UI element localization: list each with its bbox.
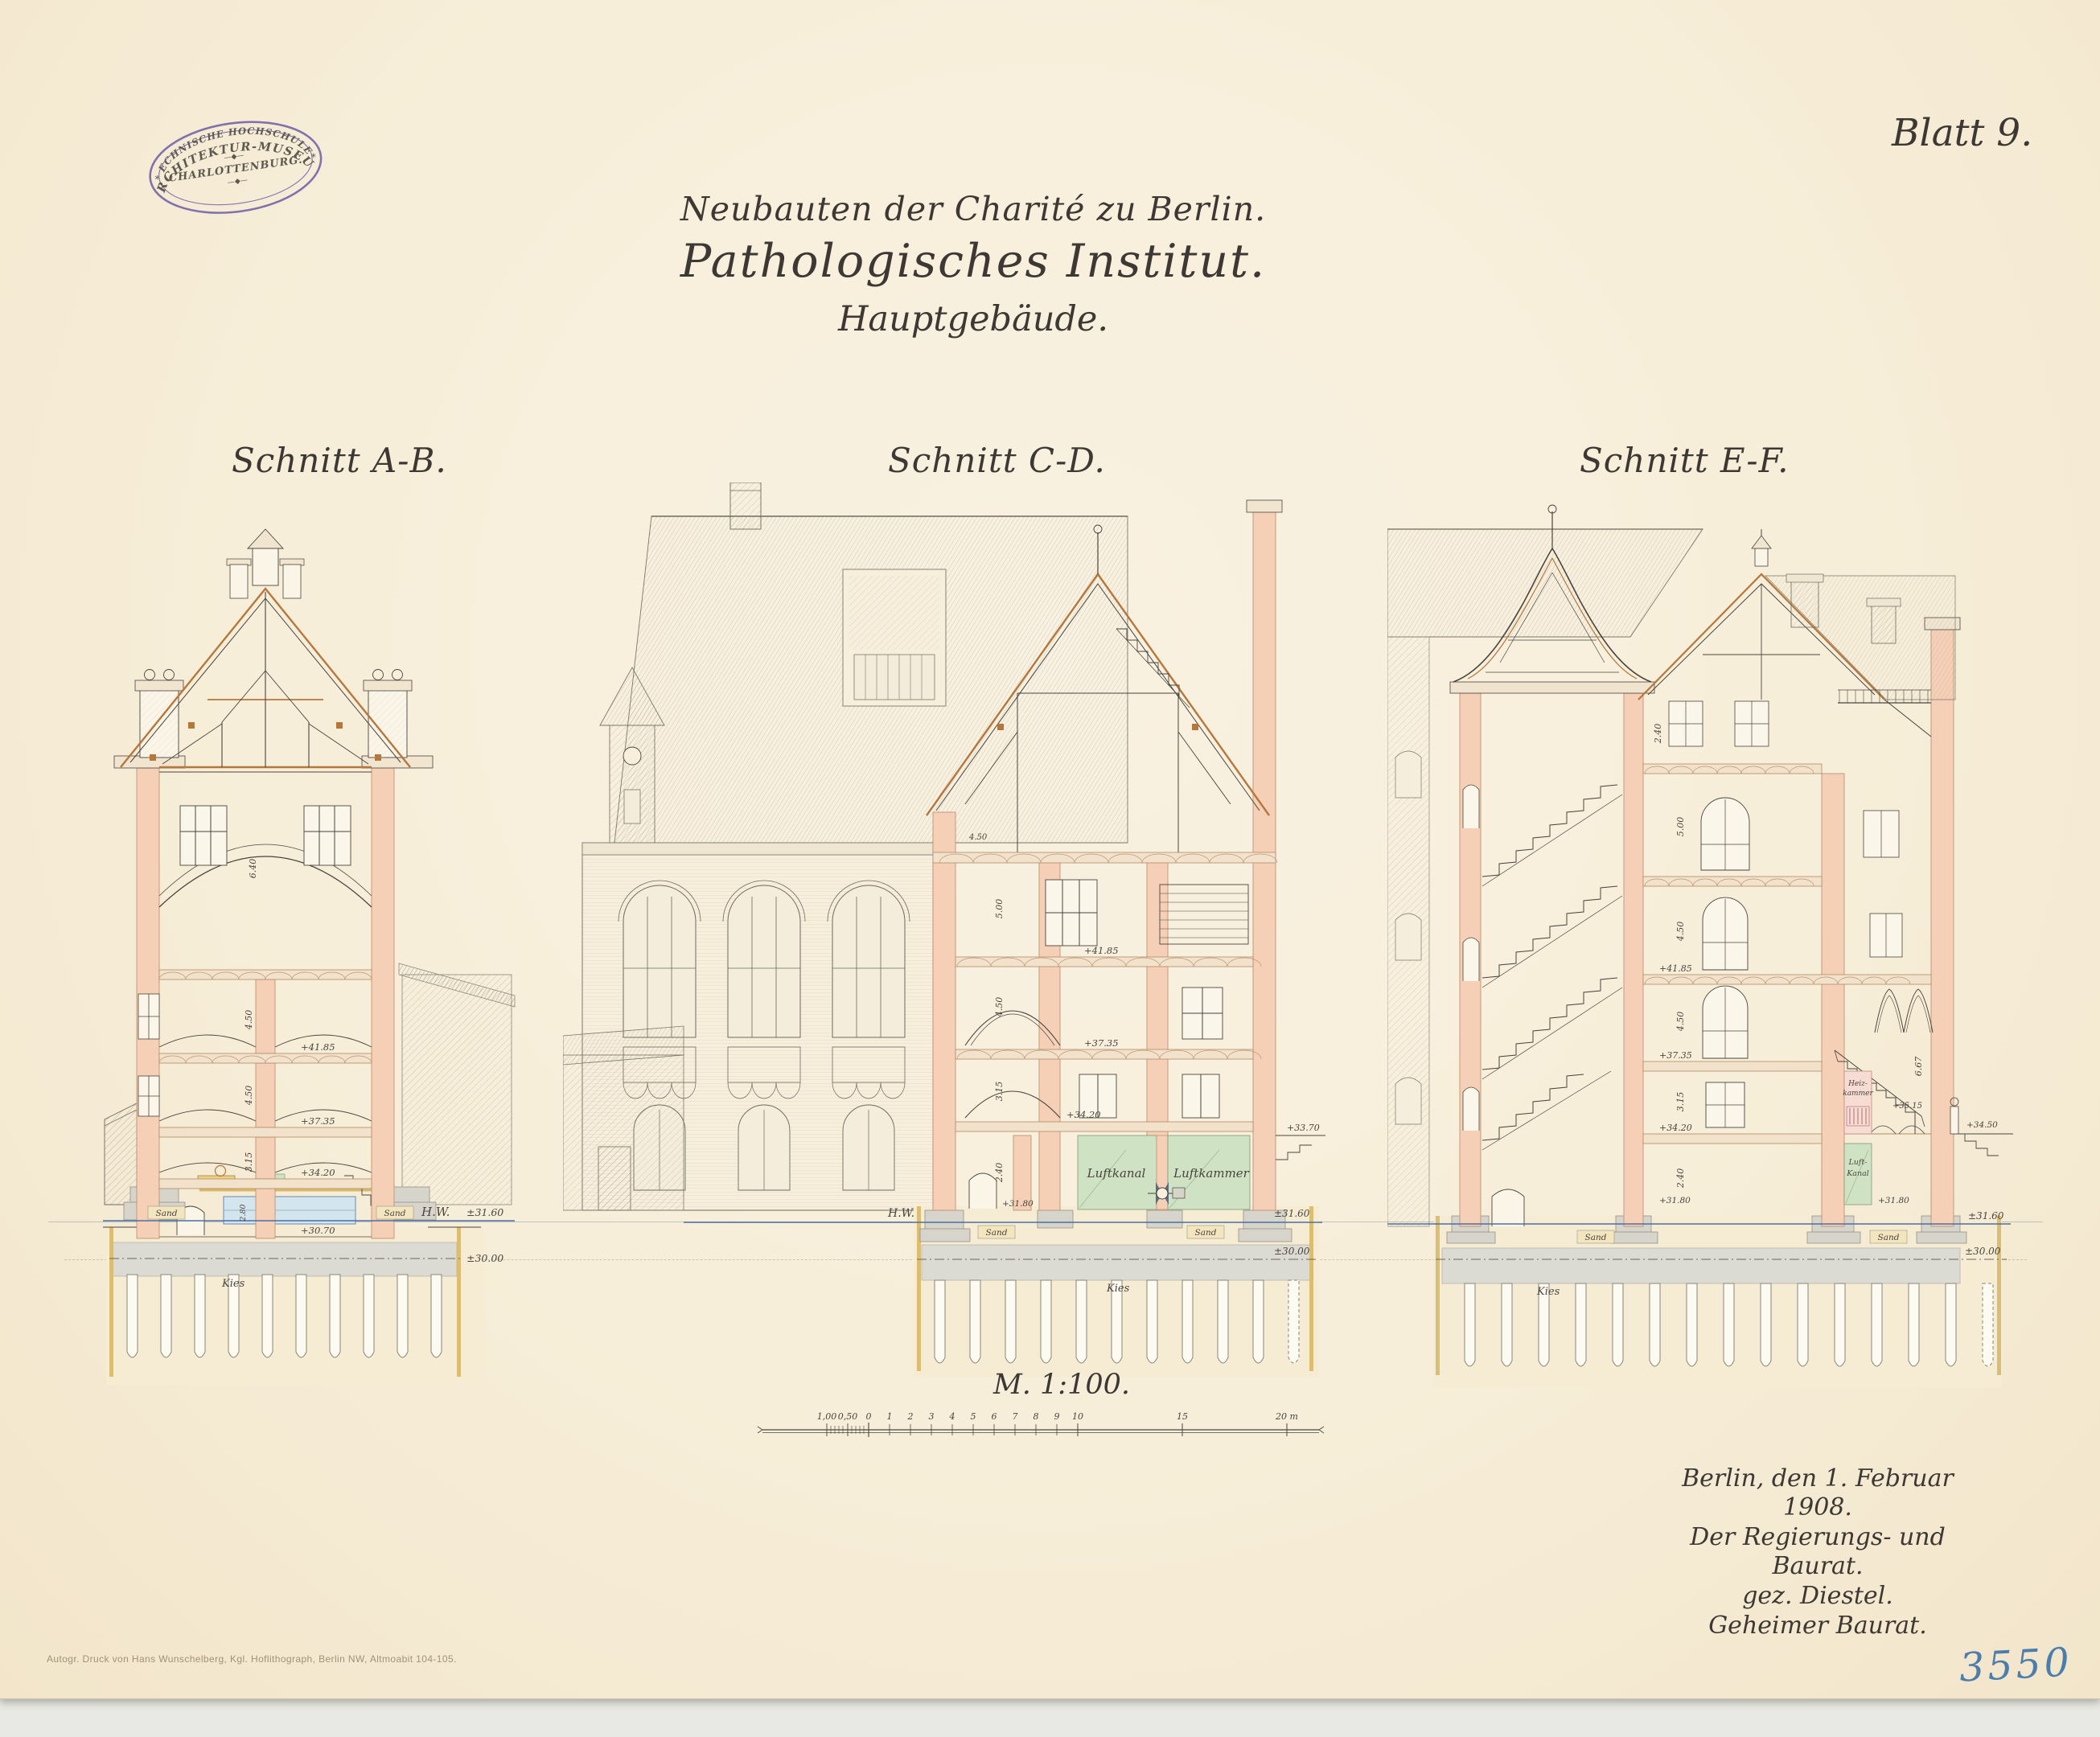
ef-level-4185: +41.85 (1659, 963, 1692, 974)
scale-tick: 1,00 (817, 1411, 837, 1422)
signature-place-date: Berlin, den 1. Februar 1908. (1665, 1464, 1971, 1522)
cd-dim-attic: 4.50 (968, 833, 988, 842)
scale-tick: 15 (1177, 1411, 1188, 1422)
ef-dim-4: 3.15 (1675, 1092, 1686, 1112)
ab-level-3420: +34.20 (301, 1167, 335, 1178)
stamp-star-right: * (310, 151, 317, 163)
cd-level-3735: +37.35 (1084, 1037, 1119, 1049)
cd-level-3420: +34.20 (1066, 1109, 1101, 1120)
cd-level-3370: +33.70 (1287, 1123, 1320, 1133)
ef-heiz-label-2: kammer (1843, 1090, 1873, 1098)
ab-hall (159, 806, 372, 907)
cd-level-4185: +41.85 (1084, 945, 1119, 956)
stamp-ornament-bottom: —◆— (227, 176, 248, 187)
cd-kies-label: Kies (1106, 1283, 1130, 1295)
section-cd-drawing: Luftkanal Luftkammer Sand Sand Kies (563, 482, 1327, 1399)
ef-level-3180-right: +31.80 (1878, 1196, 1909, 1205)
ef-sand-left-label: Sand (1585, 1233, 1607, 1242)
title-line-3: Hauptgebäude. (668, 299, 1279, 339)
ef-dim-2: 4.50 (1675, 922, 1686, 942)
scale-tick: 10 (1072, 1411, 1083, 1422)
ef-dim-3: 4.50 (1675, 1012, 1686, 1033)
scale-tick: 1 (887, 1411, 893, 1422)
scale-tick: 5 (971, 1411, 976, 1422)
ab-ground (103, 1227, 484, 1385)
ab-dim-4: 3.15 (244, 1152, 254, 1172)
inventory-number: 3550 (1958, 1639, 2073, 1690)
signature-name: gez. Diestel. (1665, 1582, 1971, 1611)
cd-dim-4: 2.40 (994, 1163, 1005, 1184)
ef-luft-label-2: Kanal (1846, 1169, 1869, 1178)
cd-sand-right-label: Sand (1195, 1228, 1217, 1238)
ab-level-4185: +41.85 (301, 1041, 335, 1053)
scale-tick: 6 (992, 1411, 997, 1422)
printer-imprint: Autogr. Druck von Hans Wunschelberg, Kgl… (47, 1653, 457, 1665)
scale-tick: 0 (866, 1411, 872, 1422)
ab-level-3070: +30.70 (301, 1225, 335, 1236)
page-title: Pathologisches Institut. (668, 235, 1279, 288)
cd-basement-air-rooms: Luftkanal Luftkammer (1078, 1135, 1250, 1209)
ef-dim-hall: 6.67 (1913, 1057, 1924, 1077)
ab-hw-label: H.W. (421, 1205, 450, 1219)
scale-bar: 1,00 0,50 0 1 2 3 4 5 6 7 8 9 10 15 20 m (756, 1409, 1327, 1444)
ab-flywheel (216, 1166, 226, 1176)
ab-level-3735: +37.35 (301, 1115, 335, 1127)
ef-luft-label-1: Luft- (1848, 1158, 1868, 1167)
ef-level-3735: +37.35 (1659, 1050, 1692, 1061)
cd-luftkammer-label: Luftkammer (1173, 1166, 1250, 1181)
title-block: Neubauten der Charité zu Berlin. Patholo… (668, 190, 1279, 339)
ef-hw-value: ±31.60 (1968, 1210, 2004, 1222)
scale-tick: 20 m (1275, 1411, 1298, 1422)
ef-dim-1: 5.00 (1675, 817, 1686, 837)
cd-dim-3: 3.15 (994, 1082, 1005, 1102)
scale-tick: 3 (929, 1411, 935, 1422)
cd-background-facade (563, 843, 933, 1210)
cd-hw-label: H.W. (887, 1207, 914, 1220)
ab-hall-window-right (304, 806, 351, 865)
ef-dim-attic: 2.40 (1653, 724, 1663, 745)
scanned-sheet-stage: ARCHITEKTUR-MUSEUM —◆— CHARLOTTENBURG. —… (0, 0, 2100, 1737)
ef-shafts: Heiz- kammer Luft- Kanal (1843, 1071, 1873, 1205)
cd-level-3000: ±30.00 (1274, 1246, 1310, 1257)
ab-sand-left-label: Sand (156, 1209, 178, 1218)
ef-level-3420: +34.20 (1659, 1123, 1692, 1133)
section-ef-label: Schnitt E-F. (1580, 441, 1790, 480)
ab-dim-3: 4.50 (244, 1086, 254, 1107)
ab-level-3000: ±30.00 (466, 1252, 503, 1264)
scale-tick: 2 (907, 1411, 914, 1422)
ab-dim-2: 4.50 (244, 1010, 254, 1031)
cd-dim-2: 4.50 (994, 997, 1005, 1018)
scale-tick: 4 (949, 1411, 955, 1422)
ab-hall-window-left (180, 806, 227, 865)
ef-kies-label: Kies (1536, 1286, 1560, 1298)
ef-dim-5: 2.40 (1675, 1168, 1686, 1189)
cd-dim-1: 5.00 (994, 899, 1005, 919)
cd-luftkanal-label: Luftkanal (1087, 1166, 1146, 1181)
cd-hw-value: ±31.60 (1274, 1208, 1310, 1219)
cd-clock-face (623, 747, 641, 765)
stamp-ornament-top: —◆— (224, 152, 245, 162)
cd-sand-left-label: Sand (986, 1228, 1008, 1238)
stamp-star-left: * (154, 173, 161, 185)
ef-level-3450: +34.50 (1966, 1120, 1998, 1130)
section-ef-drawing: Heiz- kammer Luft- Kanal Sand Sand Kies … (1387, 499, 2015, 1399)
cd-level-3180: +31.80 (1002, 1199, 1034, 1209)
ab-dim-5: 2.80 (239, 1204, 248, 1222)
ab-dim-hall: 6.40 (248, 859, 258, 879)
ef-heiz-label-1: Heiz- (1847, 1080, 1868, 1088)
ab-hw-value: ±31.60 (466, 1206, 503, 1218)
title-line-1: Neubauten der Charité zu Berlin. (668, 190, 1279, 228)
section-ab-label: Schnitt A-B. (232, 441, 447, 480)
scale-label: M. 1:100. (933, 1369, 1190, 1401)
ef-level-3515: +35.15 (1892, 1102, 1922, 1111)
cd-background-roof (600, 482, 1128, 843)
section-ab-drawing: Sand Sand Kies +41.85 +37.35 +34.20 +30.… (103, 523, 521, 1391)
ab-sand-right-label: Sand (384, 1209, 406, 1218)
ab-eave-chimneys (135, 670, 412, 758)
ef-level-3000: ±30.00 (1965, 1246, 2001, 1257)
sheet-number: Blatt 9. (1892, 111, 2032, 155)
scale-tick-labels: 1,00 0,50 0 1 2 3 4 5 6 7 8 9 10 15 20 m (817, 1411, 1298, 1422)
cd-dormer (843, 569, 946, 706)
ef-level-3180-left: +31.80 (1659, 1196, 1691, 1205)
signature-block: Berlin, den 1. Februar 1908. Der Regieru… (1665, 1464, 1971, 1640)
ab-cut-walls (137, 758, 394, 1238)
ef-stair-flights (1463, 785, 1622, 1226)
scale-tick: 8 (1034, 1411, 1039, 1422)
cd-chimney-cap (1247, 500, 1282, 512)
signature-office: Der Regierungs- und Baurat. (1665, 1523, 1971, 1581)
cd-right-terrace (1276, 1135, 1325, 1160)
section-cd-label: Schnitt C-D. (888, 441, 1106, 480)
scale-tick: 0,50 (838, 1411, 858, 1422)
signature-title: Geheimer Baurat. (1665, 1612, 1971, 1640)
scale-tick: 9 (1054, 1411, 1060, 1422)
scale-tick: 7 (1013, 1411, 1018, 1422)
ab-background-wing-right (399, 963, 515, 1205)
ab-kies-label: Kies (221, 1278, 245, 1290)
cd-annex (563, 1026, 684, 1210)
ef-sand-right-label: Sand (1878, 1233, 1900, 1242)
